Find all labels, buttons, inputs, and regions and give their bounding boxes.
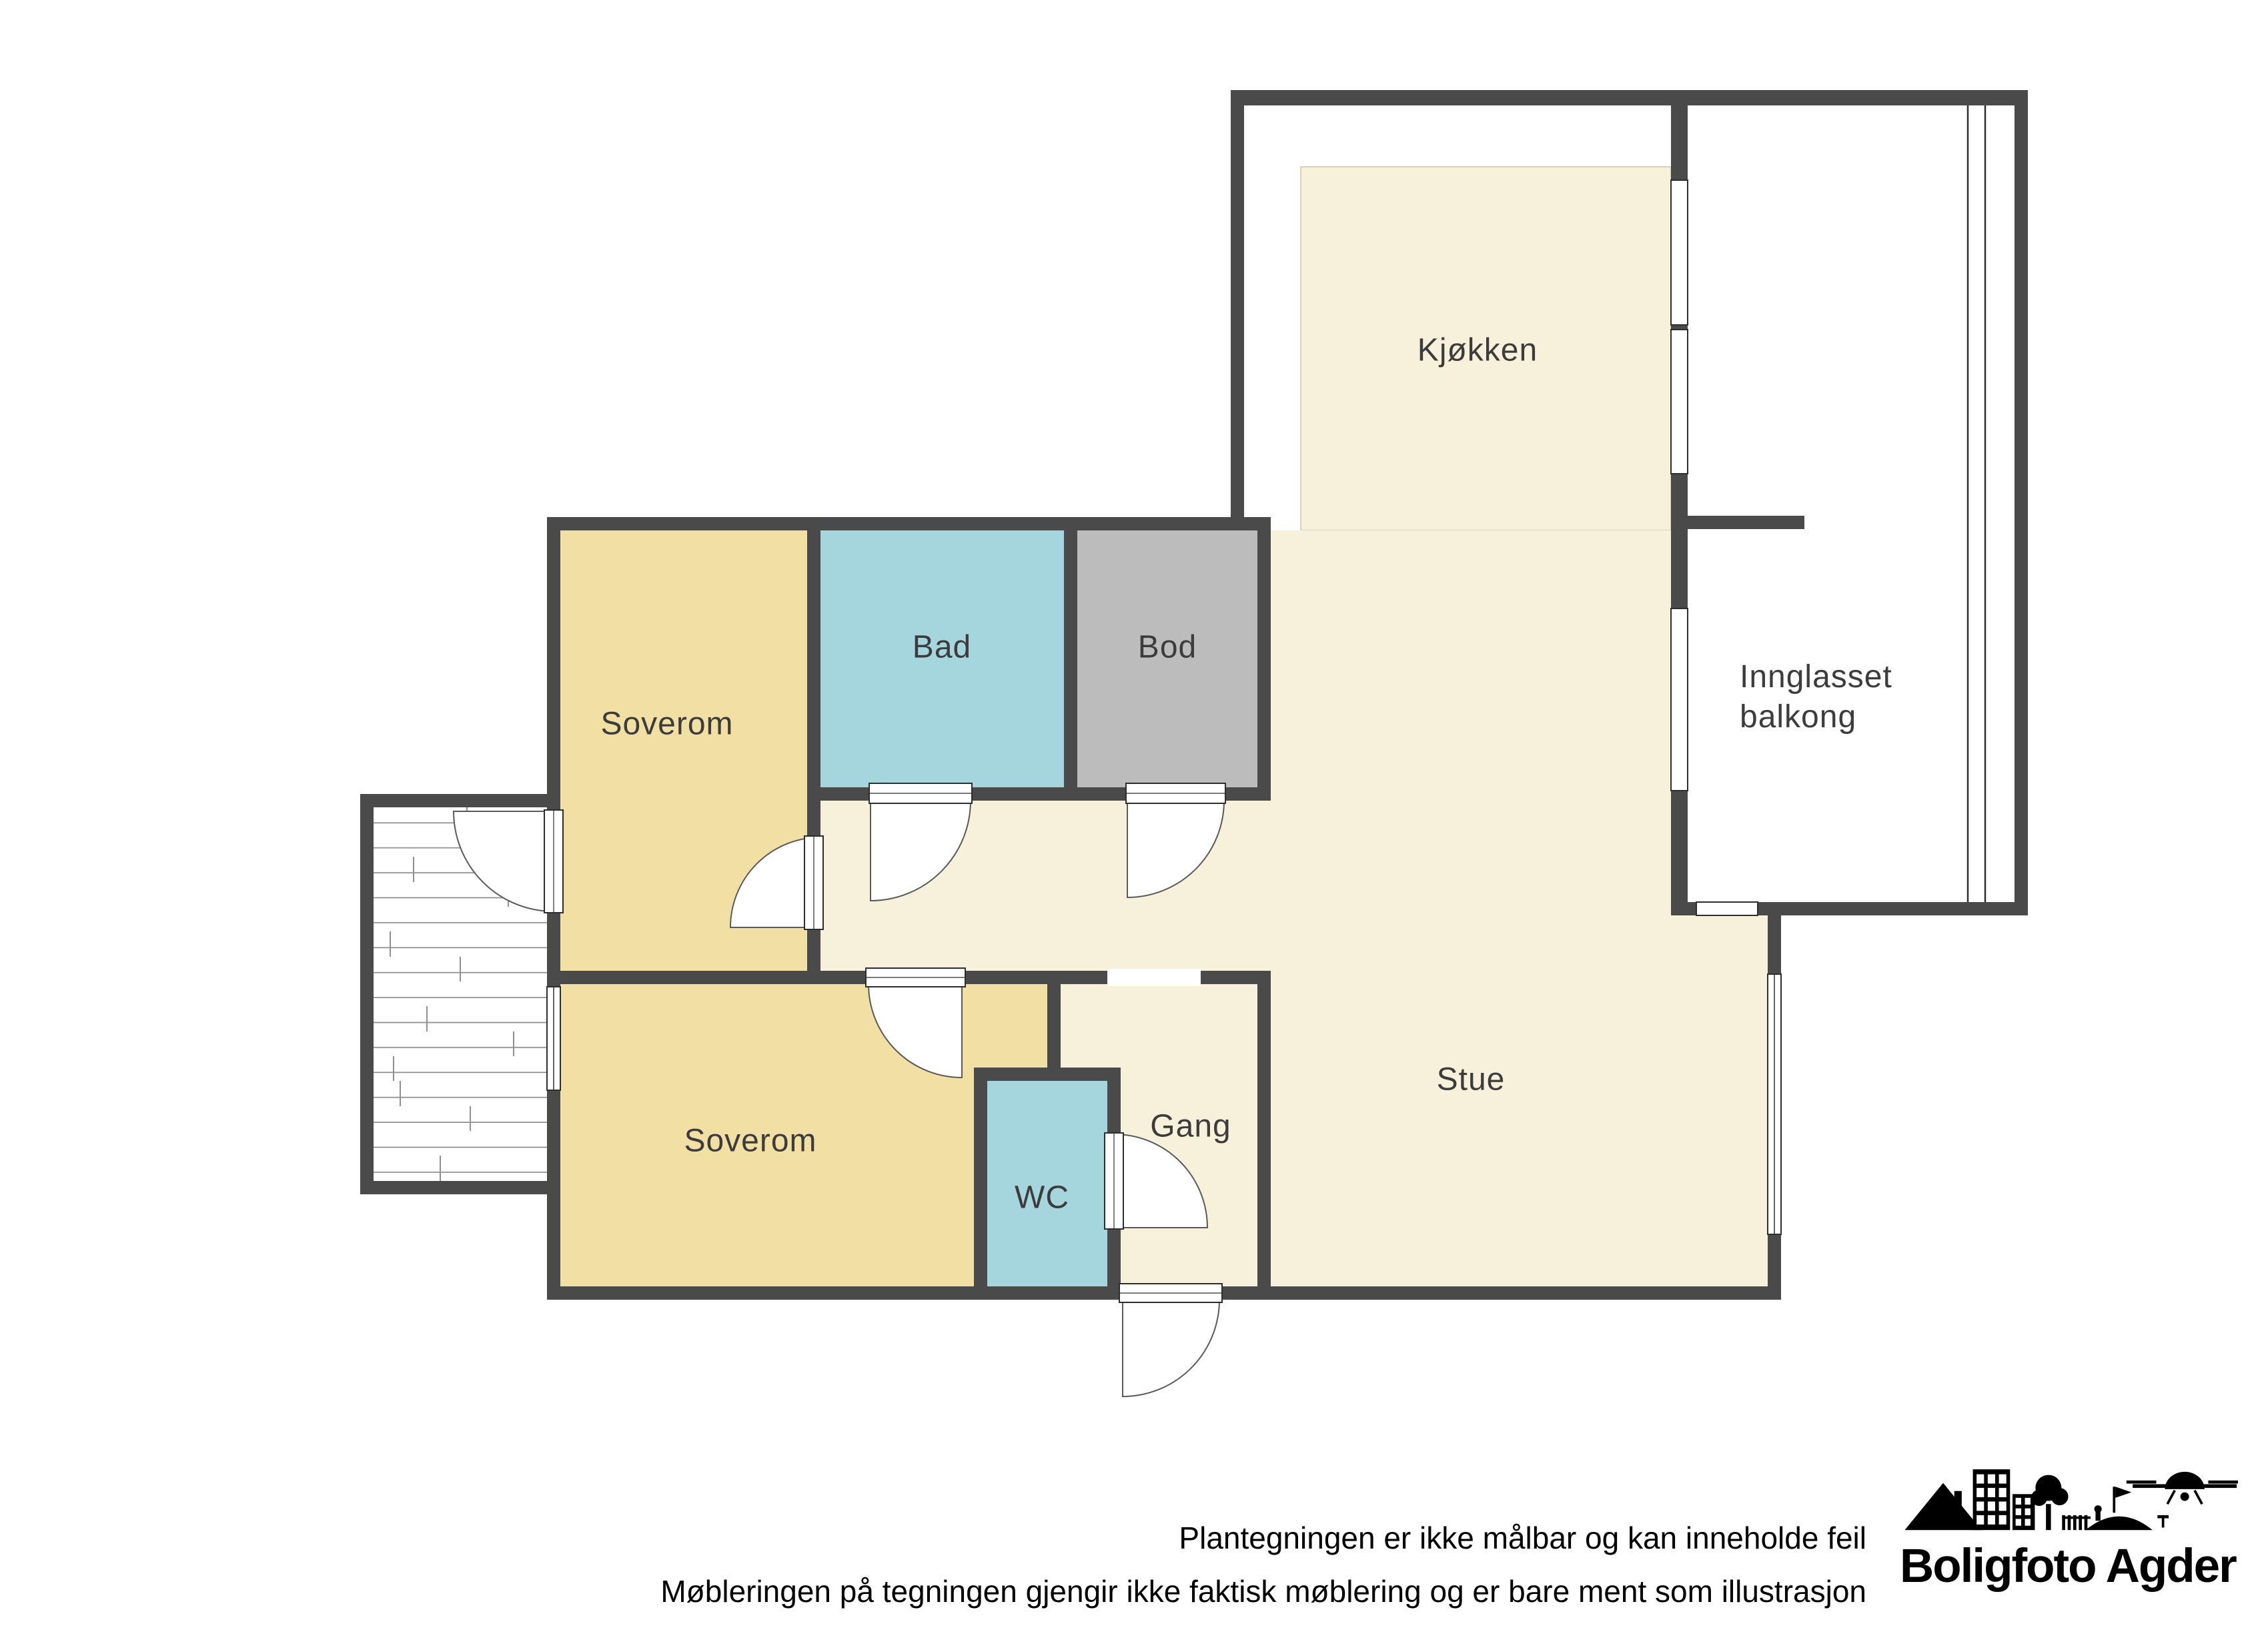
chimney-icon bbox=[1954, 1491, 1962, 1506]
kitchen-window-1 bbox=[1671, 180, 1688, 325]
balcony-glass-lines bbox=[1968, 105, 1985, 902]
label-kjokken: Kjøkken bbox=[1417, 332, 1538, 369]
label-stue: Stue bbox=[1437, 1062, 1506, 1098]
disclaimer-line-2: Møbleringen på tegningen gjengir ikke fa… bbox=[660, 1573, 1866, 1609]
wall-row-top bbox=[547, 517, 1271, 530]
floor-plan-page: Kjøkken Innglasset balkong Soverom Bad B… bbox=[0, 0, 2268, 1650]
label-soverom-1: Soverom bbox=[600, 706, 733, 743]
mountain-icon bbox=[1904, 1483, 1981, 1531]
label-innglasset-balkong: Innglasset balkong bbox=[1740, 657, 1892, 737]
wall-deck-top bbox=[360, 794, 560, 807]
label-gang: Gang bbox=[1150, 1108, 1231, 1145]
kitchen-window-3 bbox=[1671, 608, 1688, 791]
label-bad: Bad bbox=[913, 629, 971, 666]
floor-plan-drawing bbox=[0, 0, 2268, 1650]
wall-bod-right bbox=[1257, 517, 1271, 787]
label-soverom-2: Soverom bbox=[684, 1123, 816, 1160]
logo-skyline-icon bbox=[1900, 1455, 2247, 1540]
wall-deck-left bbox=[360, 794, 374, 1194]
wall-soverom2-gang bbox=[1047, 984, 1061, 1081]
disclaimer-line-1: Plantegningen er ikke målbar og kan inne… bbox=[1179, 1520, 1866, 1556]
wall-wc-left bbox=[974, 1068, 987, 1300]
wall-wc-top bbox=[974, 1068, 1121, 1081]
kitchen-window-2 bbox=[1671, 330, 1688, 474]
label-bod: Bod bbox=[1138, 629, 1197, 666]
label-innglasset-line1: Innglasset bbox=[1740, 657, 1892, 697]
fence-icon bbox=[2062, 1515, 2091, 1530]
logo-text: Boligfoto Agder bbox=[1900, 1539, 2253, 1593]
entrance-door-swing bbox=[1123, 1300, 1219, 1396]
gang-opening bbox=[1107, 969, 1201, 986]
wall-kitchen-left bbox=[1231, 90, 1244, 530]
soverom-2-floor bbox=[560, 984, 1047, 1081]
open-area-floor bbox=[1271, 530, 1671, 915]
wall-balcony-stub bbox=[1688, 516, 1804, 529]
soverom-2-floor-lower bbox=[560, 1081, 974, 1286]
sign-icon bbox=[2157, 1515, 2169, 1528]
hill-flag-icon bbox=[2086, 1487, 2153, 1530]
label-wc: WC bbox=[1015, 1180, 1069, 1216]
wall-deck-bottom bbox=[360, 1181, 560, 1194]
label-innglasset-line2: balkong bbox=[1740, 697, 1892, 737]
wall-top bbox=[1231, 90, 2028, 105]
wall-gang-right bbox=[1257, 984, 1271, 1300]
drone-icon bbox=[2127, 1472, 2238, 1504]
wall-bad-bod bbox=[1064, 530, 1077, 787]
wall-balcony-right bbox=[2015, 90, 2028, 915]
boligfoto-agder-logo: Boligfoto Agder bbox=[1900, 1455, 2253, 1593]
stue-floor bbox=[1271, 915, 1781, 1286]
balcony-bottom-window bbox=[1696, 902, 1758, 915]
building-icon bbox=[1973, 1469, 2011, 1530]
